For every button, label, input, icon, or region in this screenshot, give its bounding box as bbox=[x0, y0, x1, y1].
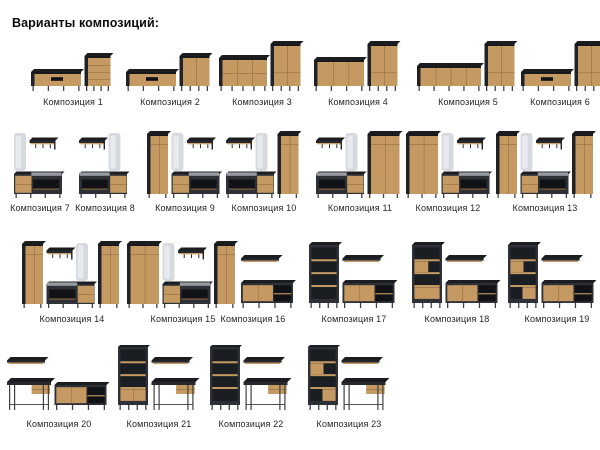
composition-label: Композиция 8 bbox=[75, 203, 135, 213]
composition-9-illustration bbox=[147, 127, 224, 199]
composition-label: Композиция 2 bbox=[140, 97, 200, 107]
composition-label: Композиция 9 bbox=[155, 203, 215, 213]
piece-mirror bbox=[256, 133, 268, 171]
composition-15-illustration bbox=[127, 235, 239, 309]
composition-16-illustration bbox=[241, 235, 297, 309]
piece-mirror bbox=[346, 133, 358, 171]
composition-label: Композиция 21 bbox=[127, 419, 192, 429]
composition-1: Композиция 1 bbox=[31, 36, 115, 109]
composition-2: Композиция 2 bbox=[126, 36, 214, 109]
composition-22-illustration bbox=[210, 345, 292, 411]
piece-wardrobe bbox=[572, 131, 596, 198]
piece-wardrobe bbox=[278, 131, 302, 198]
composition-18-illustration bbox=[412, 235, 502, 309]
piece-desk bbox=[152, 378, 200, 410]
piece-coat-rack bbox=[226, 138, 255, 150]
piece-sideboard-open bbox=[55, 382, 110, 410]
composition-16: Композиция 16 bbox=[241, 235, 297, 326]
composition-8: Композиция 8 bbox=[79, 127, 131, 215]
piece-desk bbox=[342, 378, 390, 410]
piece-bench bbox=[521, 172, 572, 199]
piece-sideboard-open bbox=[343, 280, 398, 308]
piece-wardrobe-wide bbox=[406, 131, 441, 198]
piece-highboard bbox=[575, 41, 600, 91]
piece-tv-stand bbox=[521, 69, 574, 91]
composition-12-illustration bbox=[406, 127, 494, 199]
piece-wall-shelf bbox=[343, 255, 385, 262]
piece-mirror bbox=[172, 133, 184, 171]
composition-5-illustration bbox=[417, 36, 519, 92]
composition-14-illustration bbox=[22, 235, 123, 309]
composition-19-illustration bbox=[508, 235, 598, 309]
composition-21: Композиция 21 bbox=[118, 345, 200, 431]
composition-10: Композиция 10 bbox=[226, 127, 303, 215]
piece-highboard bbox=[271, 41, 304, 91]
piece-tv-stand bbox=[31, 69, 84, 91]
composition-label: Композиция 23 bbox=[317, 419, 382, 429]
piece-desk bbox=[244, 378, 292, 410]
composition-label: Композиция 11 bbox=[328, 203, 392, 213]
composition-14: Композиция 14 bbox=[22, 235, 123, 326]
piece-mirror bbox=[442, 133, 454, 171]
piece-wall-shelf bbox=[152, 357, 194, 364]
piece-bookshelf-boxes bbox=[508, 242, 541, 308]
piece-chest bbox=[85, 53, 114, 91]
piece-coat-rack bbox=[47, 248, 76, 260]
piece-bookshelf-box bbox=[412, 242, 445, 308]
piece-sideboard-long bbox=[417, 63, 484, 91]
piece-sideboard bbox=[314, 57, 367, 91]
composition-label: Композиция 19 bbox=[525, 314, 590, 324]
composition-label: Композиция 4 bbox=[328, 97, 388, 107]
composition-19: Композиция 19 bbox=[508, 235, 598, 326]
composition-10-illustration bbox=[226, 127, 303, 199]
composition-22: Композиция 22 bbox=[210, 345, 292, 431]
composition-label: Композиция 6 bbox=[530, 97, 590, 107]
composition-20-illustration bbox=[7, 345, 111, 411]
piece-wardrobe-wide bbox=[127, 241, 162, 308]
piece-coat-rack bbox=[178, 248, 207, 260]
composition-label: Композиция 18 bbox=[425, 314, 490, 324]
composition-7-illustration bbox=[14, 127, 66, 199]
piece-wardrobe bbox=[496, 131, 520, 198]
piece-bookshelf-open bbox=[309, 242, 342, 308]
piece-coat-rack bbox=[30, 138, 59, 150]
composition-6-illustration bbox=[521, 36, 600, 92]
piece-wall-shelf bbox=[542, 255, 584, 262]
piece-sideboard-open bbox=[241, 280, 296, 308]
piece-bookshelf-boxes bbox=[308, 345, 341, 410]
piece-bench bbox=[163, 282, 214, 309]
piece-coat-rack bbox=[536, 138, 565, 150]
composition-label: Композиция 10 bbox=[232, 203, 297, 213]
piece-wardrobe bbox=[147, 131, 171, 198]
piece-coat-rack bbox=[457, 138, 486, 150]
composition-label: Композиция 12 bbox=[416, 203, 481, 213]
composition-6: Композиция 6 bbox=[521, 36, 600, 109]
piece-coat-rack bbox=[187, 138, 216, 150]
piece-bench-r bbox=[47, 282, 98, 309]
composition-label: Композиция 13 bbox=[513, 203, 578, 213]
piece-mirror bbox=[521, 133, 533, 171]
piece-bench-r bbox=[316, 172, 367, 199]
composition-label: Композиция 15 bbox=[151, 314, 216, 324]
piece-bench bbox=[442, 172, 493, 199]
piece-bookshelf-open bbox=[210, 345, 243, 410]
piece-wardrobe-wide bbox=[368, 131, 403, 198]
composition-8-illustration bbox=[79, 127, 131, 199]
composition-2-illustration bbox=[126, 36, 214, 92]
composition-23-illustration bbox=[308, 345, 390, 411]
composition-1-illustration bbox=[31, 36, 115, 92]
piece-mirror bbox=[163, 243, 175, 281]
piece-desk bbox=[7, 378, 55, 410]
piece-dresser bbox=[219, 55, 270, 91]
composition-15: Композиция 15 bbox=[127, 235, 239, 326]
piece-bench bbox=[14, 172, 65, 199]
composition-label: Композиция 17 bbox=[322, 314, 387, 324]
composition-label: Композиция 3 bbox=[232, 97, 292, 107]
piece-mirror bbox=[109, 133, 121, 171]
piece-bookshelf-doors bbox=[118, 345, 151, 410]
piece-highboard bbox=[485, 41, 518, 91]
piece-mirror bbox=[76, 243, 88, 281]
piece-wall-shelf bbox=[241, 255, 283, 262]
piece-bench-r bbox=[226, 172, 277, 199]
piece-wall-shelf bbox=[342, 357, 384, 364]
composition-17: Композиция 17 bbox=[309, 235, 399, 326]
composition-5: Композиция 5 bbox=[417, 36, 519, 109]
piece-wall-shelf bbox=[446, 255, 488, 262]
composition-label: Композиция 1 bbox=[43, 97, 103, 107]
composition-20: Композиция 20 bbox=[7, 345, 111, 431]
composition-17-illustration bbox=[309, 235, 399, 309]
composition-label: Композиция 5 bbox=[438, 97, 498, 107]
piece-coat-rack bbox=[79, 138, 108, 150]
piece-coat-rack bbox=[316, 138, 345, 150]
composition-label: Композиция 16 bbox=[221, 314, 286, 324]
composition-label: Композиция 20 bbox=[27, 419, 92, 429]
composition-label: Композиция 14 bbox=[40, 314, 105, 324]
composition-13-illustration bbox=[496, 127, 597, 199]
compositions-grid: Композиция 1Композиция 2Композиция 3Комп… bbox=[0, 0, 600, 450]
composition-11: Композиция 11 bbox=[316, 127, 404, 215]
piece-wardrobe bbox=[98, 241, 122, 308]
piece-mirror bbox=[14, 133, 26, 171]
composition-label: Композиция 7 bbox=[10, 203, 70, 213]
composition-4-illustration bbox=[314, 36, 402, 92]
composition-13: Композиция 13 bbox=[496, 127, 597, 215]
piece-bench bbox=[172, 172, 223, 199]
piece-wardrobe bbox=[22, 241, 46, 308]
piece-highboard bbox=[368, 41, 401, 91]
piece-cabinet bbox=[180, 53, 213, 91]
piece-wall-shelf bbox=[7, 357, 49, 364]
piece-wall-shelf bbox=[244, 357, 286, 364]
piece-bench-r bbox=[79, 172, 130, 199]
composition-3-illustration bbox=[219, 36, 305, 92]
piece-sideboard-open bbox=[542, 280, 597, 308]
piece-sideboard-open bbox=[446, 280, 501, 308]
composition-18: Композиция 18 bbox=[412, 235, 502, 326]
composition-7: Композиция 7 bbox=[14, 127, 66, 215]
composition-4: Композиция 4 bbox=[314, 36, 402, 109]
composition-3: Композиция 3 bbox=[219, 36, 305, 109]
piece-wardrobe bbox=[214, 241, 238, 308]
composition-12: Композиция 12 bbox=[406, 127, 494, 215]
composition-label: Композиция 22 bbox=[219, 419, 284, 429]
composition-9: Композиция 9 bbox=[147, 127, 224, 215]
composition-23: Композиция 23 bbox=[308, 345, 390, 431]
piece-tv-stand bbox=[126, 69, 179, 91]
composition-21-illustration bbox=[118, 345, 200, 411]
page: Варианты композиций: Композиция 1Компози… bbox=[0, 0, 600, 450]
composition-11-illustration bbox=[316, 127, 404, 199]
